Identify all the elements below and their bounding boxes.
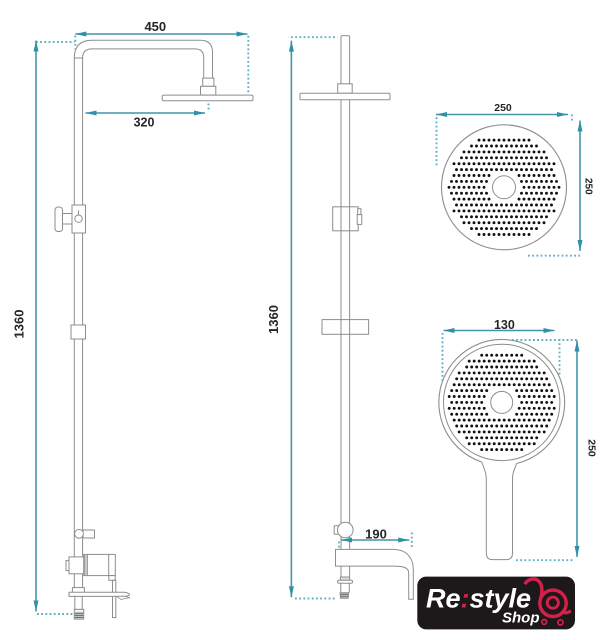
- svg-text:130: 130: [494, 318, 515, 332]
- svg-text:250: 250: [583, 178, 594, 195]
- svg-text:1360: 1360: [266, 305, 281, 334]
- svg-text:250: 250: [494, 102, 512, 114]
- svg-text:250: 250: [585, 439, 597, 457]
- svg-text:Shop: Shop: [502, 610, 540, 627]
- svg-text:320: 320: [134, 115, 155, 129]
- svg-text:1360: 1360: [12, 310, 27, 339]
- svg-text:190: 190: [365, 526, 387, 541]
- svg-text:450: 450: [144, 19, 166, 34]
